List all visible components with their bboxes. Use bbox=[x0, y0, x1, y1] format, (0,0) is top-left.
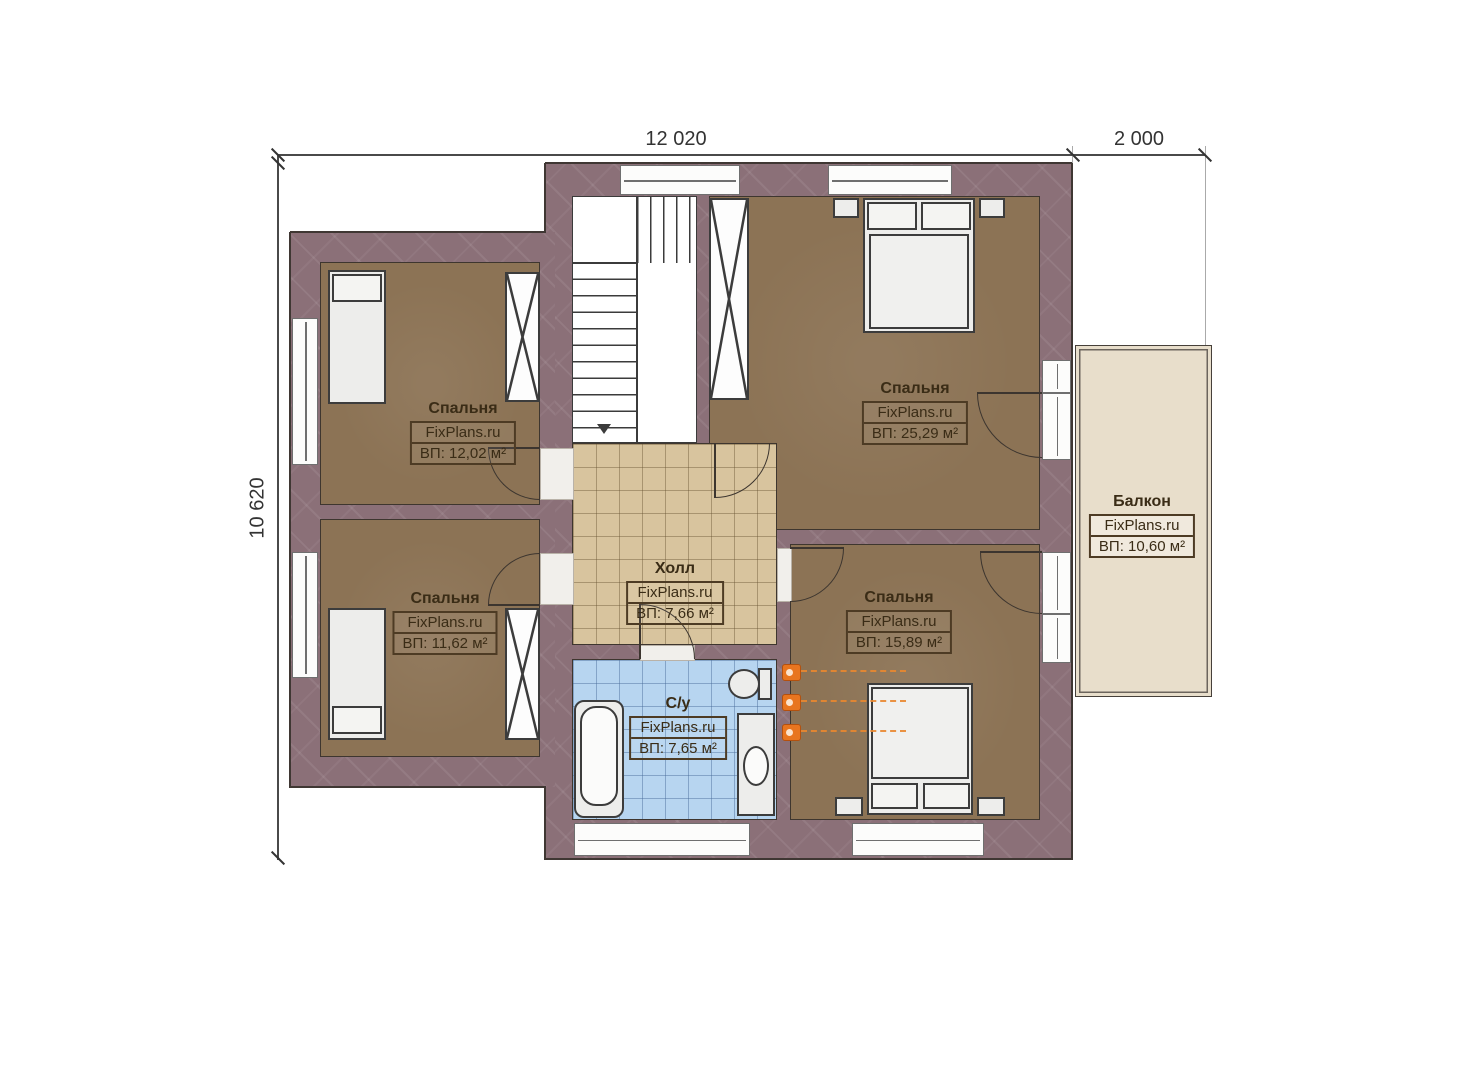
floor-plan-canvas: Спальня FixPlans.ru ВП: 12,02 м² Спальня… bbox=[0, 0, 1473, 1080]
plumbing-line bbox=[801, 670, 906, 672]
closet-top-right bbox=[709, 198, 749, 400]
watermark-text: FixPlans.ru bbox=[631, 718, 725, 737]
watermark-box: FixPlans.ru ВП: 12,02 м² bbox=[410, 421, 516, 465]
dimension-left-value: 10 620 bbox=[247, 477, 270, 538]
door-leaf-balcony-top bbox=[977, 392, 1042, 394]
plumbing-line bbox=[801, 700, 906, 702]
sink-basin bbox=[743, 746, 769, 786]
dimension-line-left bbox=[277, 154, 279, 860]
mattress bbox=[869, 234, 969, 329]
plumbing-line bbox=[801, 730, 906, 732]
watermark-box: FixPlans.ru ВП: 25,29 м² bbox=[862, 401, 968, 445]
nightstand bbox=[835, 797, 863, 816]
label-bedroom-top-right: Спальня FixPlans.ru ВП: 25,29 м² bbox=[862, 380, 968, 445]
watermark-text: FixPlans.ru bbox=[412, 423, 514, 442]
dimension-top-value: 12 020 bbox=[645, 128, 706, 151]
room-area: ВП: 10,60 м² bbox=[1091, 535, 1193, 556]
plumbing-riser-icon bbox=[782, 724, 801, 741]
door-leaf-bedroom-bottom-right bbox=[790, 547, 844, 549]
watermark-box: FixPlans.ru ВП: 11,62 м² bbox=[392, 611, 497, 655]
room-name: С/у bbox=[629, 695, 727, 713]
room-area: ВП: 15,89 м² bbox=[848, 631, 950, 652]
stair-divider bbox=[636, 196, 638, 443]
outline-left-main-lower bbox=[544, 787, 546, 860]
extension-line-balcony bbox=[1205, 146, 1206, 345]
stair-flight bbox=[572, 262, 637, 443]
dimension-balcony-value: 2 000 bbox=[1114, 128, 1164, 151]
room-name: Балкон bbox=[1089, 493, 1195, 511]
label-bedroom-bottom-right: Спальня FixPlans.ru ВП: 15,89 м² bbox=[846, 589, 952, 654]
watermark-box: FixPlans.ru ВП: 15,89 м² bbox=[846, 610, 952, 654]
watermark-text: FixPlans.ru bbox=[864, 403, 966, 422]
room-name: Спальня bbox=[846, 589, 952, 607]
nightstand bbox=[979, 198, 1005, 218]
outline-right bbox=[1071, 163, 1073, 860]
outline-left bbox=[289, 232, 291, 788]
watermark-text: FixPlans.ru bbox=[394, 613, 495, 632]
window-top-1 bbox=[620, 165, 740, 195]
pillow bbox=[332, 274, 382, 302]
dimension-line-top bbox=[278, 154, 1205, 156]
stair-direction-arrow bbox=[597, 424, 611, 434]
outline-top-left-wing bbox=[290, 231, 546, 233]
wardrobe-top-left bbox=[505, 272, 540, 402]
watermark-box: FixPlans.ru ВП: 7,66 м² bbox=[626, 581, 724, 625]
outline-bottom-main bbox=[545, 858, 1073, 860]
pillow bbox=[332, 706, 382, 734]
window-right-upper bbox=[1042, 360, 1071, 393]
window-left-1 bbox=[292, 318, 318, 465]
label-bathroom: С/у FixPlans.ru ВП: 7,65 м² bbox=[629, 695, 727, 760]
stair-winders bbox=[637, 197, 697, 263]
outline-top bbox=[545, 162, 1073, 164]
toilet-tank bbox=[758, 668, 772, 700]
room-name: Спальня bbox=[410, 400, 516, 418]
label-bedroom-bottom-left: Спальня FixPlans.ru ВП: 11,62 м² bbox=[392, 590, 497, 655]
pillow bbox=[867, 202, 917, 230]
plumbing-riser-icon bbox=[782, 664, 801, 681]
pillow bbox=[923, 783, 970, 809]
watermark-box: FixPlans.ru ВП: 10,60 м² bbox=[1089, 514, 1195, 558]
toilet-bowl bbox=[728, 669, 760, 699]
room-area: ВП: 7,66 м² bbox=[628, 602, 722, 623]
room-area: ВП: 12,02 м² bbox=[412, 442, 514, 463]
window-right-lower bbox=[1042, 614, 1071, 663]
room-name: Холл bbox=[626, 560, 724, 578]
door-opening-bedroom-top-left bbox=[540, 448, 574, 500]
label-hall: Холл FixPlans.ru ВП: 7,66 м² bbox=[626, 560, 724, 625]
door-opening-bedroom-bottom-left bbox=[540, 553, 574, 605]
door-leaf-bedroom-top-right bbox=[714, 443, 716, 498]
label-balcony: Балкон FixPlans.ru ВП: 10,60 м² bbox=[1089, 493, 1195, 558]
outline-left-main-upper bbox=[544, 163, 546, 233]
watermark-text: FixPlans.ru bbox=[1091, 516, 1193, 535]
room-area: ВП: 7,65 м² bbox=[631, 737, 725, 758]
watermark-text: FixPlans.ru bbox=[628, 583, 722, 602]
balcony-door-top-opening bbox=[1042, 393, 1071, 460]
window-bottom-bedroom bbox=[852, 823, 984, 856]
window-left-2 bbox=[292, 552, 318, 678]
watermark-text: FixPlans.ru bbox=[848, 612, 950, 631]
pillow bbox=[921, 202, 971, 230]
door-leaf-balcony-bottom bbox=[980, 551, 1042, 553]
outline-bottom-left-wing bbox=[290, 786, 546, 788]
label-bedroom-top-left: Спальня FixPlans.ru ВП: 12,02 м² bbox=[410, 400, 516, 465]
window-top-2 bbox=[828, 165, 952, 195]
watermark-box: FixPlans.ru ВП: 7,65 м² bbox=[629, 716, 727, 760]
window-bottom-bathroom bbox=[574, 823, 750, 856]
nightstand bbox=[977, 797, 1005, 816]
bathtub-basin bbox=[580, 706, 618, 806]
room-name: Спальня bbox=[392, 590, 497, 608]
wardrobe-bottom-left bbox=[505, 608, 540, 740]
nightstand bbox=[833, 198, 859, 218]
plumbing-riser-icon bbox=[782, 694, 801, 711]
balcony-door-bottom-opening bbox=[1042, 552, 1071, 614]
room-name: Спальня bbox=[862, 380, 968, 398]
stair-landing-line bbox=[572, 262, 637, 264]
room-area: ВП: 25,29 м² bbox=[864, 422, 966, 443]
room-area: ВП: 11,62 м² bbox=[394, 632, 495, 653]
pillow bbox=[871, 783, 918, 809]
